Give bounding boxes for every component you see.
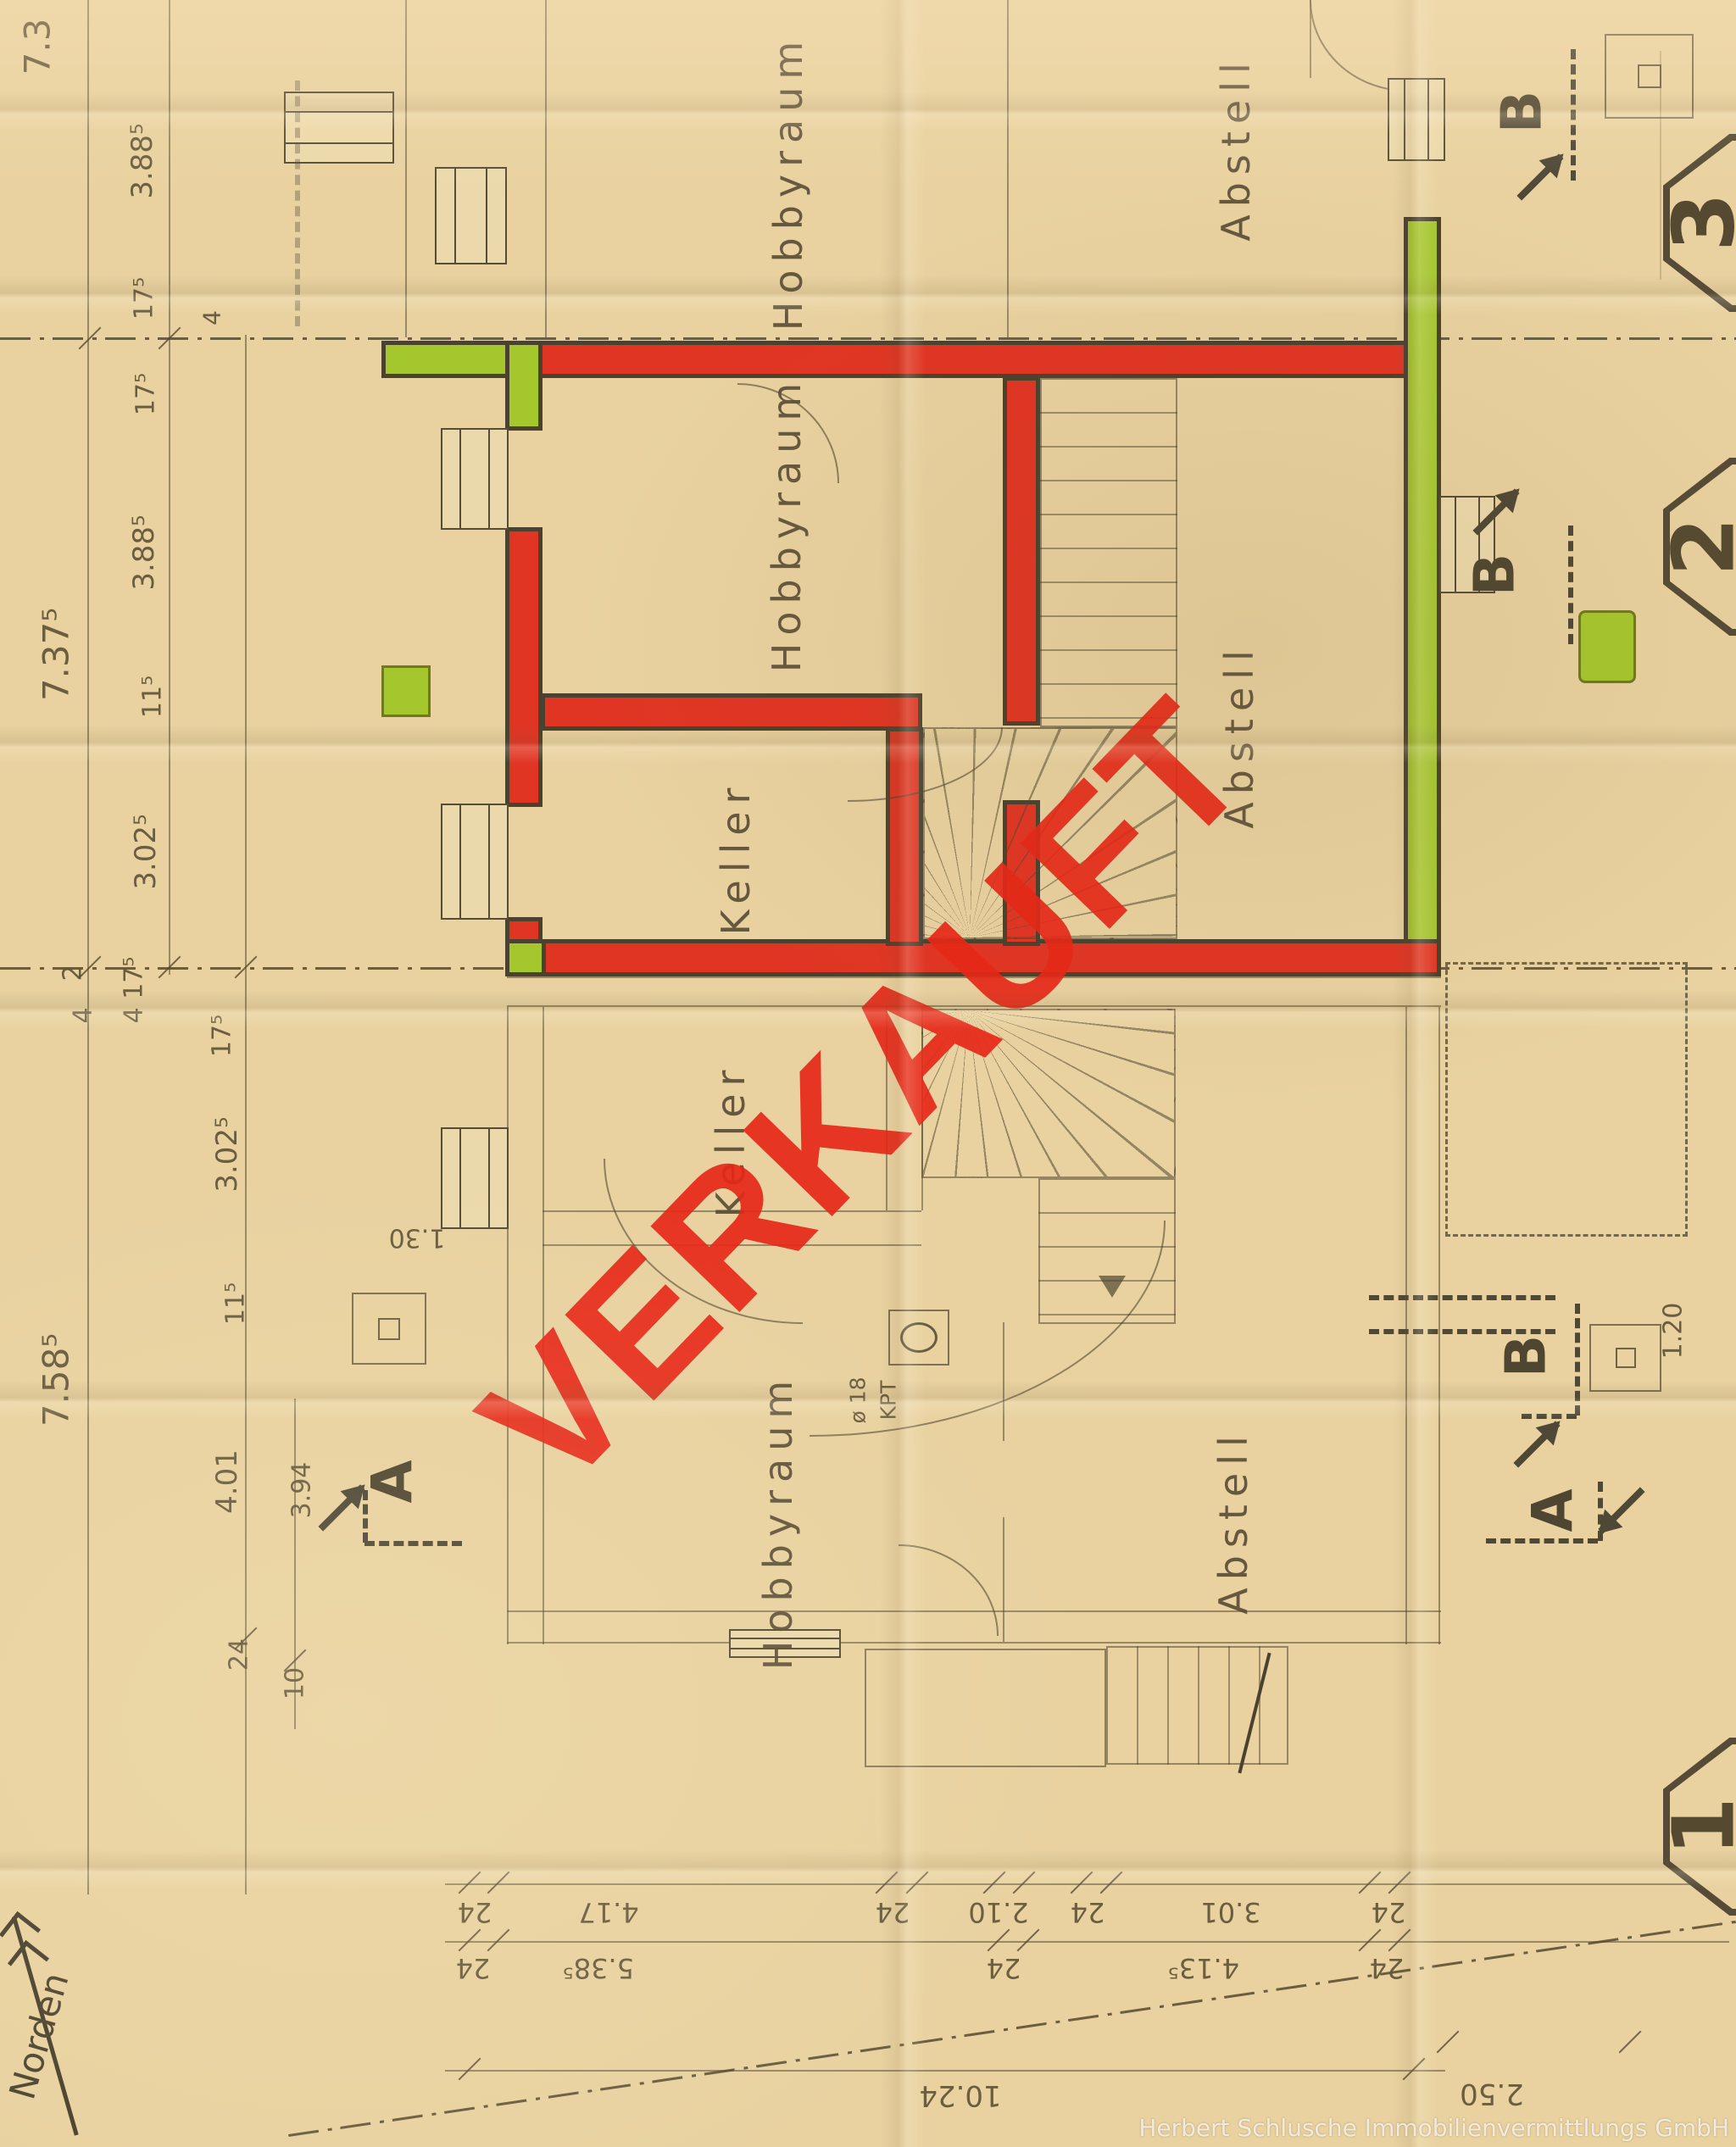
drain-diameter-label: ø 18 xyxy=(846,1377,871,1423)
dim-label: 3.02⁵ xyxy=(129,814,163,889)
window-symbol xyxy=(284,92,394,164)
lower-wall-line xyxy=(1438,1007,1440,1644)
dim-label: 4 17⁵ xyxy=(120,957,149,1024)
section-line-b xyxy=(1568,526,1573,644)
dim-guide-line xyxy=(87,0,89,1894)
dim-label: 24 xyxy=(1370,1952,1405,1984)
section-line-a xyxy=(364,1541,462,1546)
party-wall-green xyxy=(1404,217,1441,976)
sheet-badge-number-bottom: 1 xyxy=(1655,1797,1736,1856)
dim-label: 11⁵ xyxy=(138,676,168,718)
dim-label: 4.13⁵ xyxy=(1168,1952,1239,1984)
terrace-outline xyxy=(1369,1295,1555,1300)
room-label-hobbyraum-upper: Hobbyraum xyxy=(765,34,811,331)
dim-label: 3.88⁵ xyxy=(125,123,159,198)
window-symbol xyxy=(435,167,507,264)
dim-label: 4 xyxy=(198,310,226,325)
section-marker-b-top: B xyxy=(1489,91,1555,133)
dim-label: 2.10 xyxy=(968,1896,1028,1928)
upper-wall-line xyxy=(545,0,547,337)
dim-label: 7.37⁵ xyxy=(36,608,77,701)
dim-label: 3.01 xyxy=(1200,1896,1260,1928)
floorplan-scan: B B B A A 3 2 1 Hobbyraum Abstell Hobbyr… xyxy=(0,0,1736,2147)
section-marker-b-middle: B xyxy=(1462,553,1527,596)
dim-chain-line xyxy=(445,2070,1445,2072)
green-marker-square xyxy=(381,665,431,717)
sheet-badge-number-top: 3 xyxy=(1655,192,1736,252)
dim-label: 4 xyxy=(69,1007,98,1023)
dim-label: 24 xyxy=(1071,1896,1105,1928)
lower-wall-line xyxy=(1405,1007,1407,1644)
lower-wall-line xyxy=(1003,1517,1004,1642)
interior-wall-red xyxy=(541,693,922,731)
sheet-badge-number-middle: 2 xyxy=(1655,517,1736,576)
dim-label: 17⁵ xyxy=(208,1015,237,1057)
dim-label: 7.3 xyxy=(17,19,58,75)
room-label-keller-mid: Keller xyxy=(713,781,759,936)
exterior-wall-red xyxy=(505,527,542,807)
dim-label: 3.88⁵ xyxy=(127,515,161,590)
party-wall-green xyxy=(505,939,546,976)
drain-type-label: KPT xyxy=(876,1381,901,1421)
terrace-outline xyxy=(1445,962,1688,1237)
dim-label-total: 10.24 xyxy=(919,2078,1001,2112)
door-arc xyxy=(899,1544,999,1636)
section-marker-a-right: A xyxy=(1521,1488,1586,1532)
dim-label: 17⁵ xyxy=(130,277,159,320)
room-label-abstell-lower: Abstell xyxy=(1210,1428,1256,1615)
section-marker-a-left: A xyxy=(360,1460,426,1503)
room-label-hobbyraum-mid: Hobbyraum xyxy=(764,375,810,672)
section-arrow xyxy=(1598,1487,1644,1533)
party-wall-green xyxy=(505,341,542,431)
dim-label: 11⁵ xyxy=(221,1282,251,1325)
exterior-stair xyxy=(1106,1646,1288,1765)
section-line-a xyxy=(1486,1538,1598,1544)
paper-fold xyxy=(0,92,1736,131)
party-wall-green xyxy=(381,341,519,378)
lower-wall-line xyxy=(507,1642,1441,1644)
dim-label: 17⁵ xyxy=(131,373,161,415)
column-symbol xyxy=(352,1293,426,1365)
upper-wall-line xyxy=(405,0,407,337)
section-arrow xyxy=(318,1484,364,1531)
north-label: Norden xyxy=(1,1968,76,2104)
section-marker-b-lower: B xyxy=(1494,1335,1559,1377)
column-symbol xyxy=(1605,34,1694,119)
axis-line xyxy=(0,337,1736,340)
exterior-wall-red xyxy=(514,341,1441,378)
dim-label: 3.02⁵ xyxy=(210,1116,244,1192)
column-symbol xyxy=(1589,1324,1661,1392)
terrace-outline xyxy=(1369,1329,1555,1334)
dim-label: 4.01 xyxy=(210,1449,244,1514)
room-label-hobbyraum-lower: Hobbyraum xyxy=(755,1373,801,1670)
dim-label: 24 xyxy=(456,1952,491,1984)
green-marker-square xyxy=(1578,610,1636,683)
window-symbol xyxy=(1388,78,1445,161)
dim-extension-line xyxy=(295,81,300,326)
dim-label: 24 xyxy=(987,1952,1021,1984)
light-well xyxy=(865,1649,1106,1767)
dim-chain-line xyxy=(445,1941,1729,1943)
room-label-abstell-upper: Abstell xyxy=(1213,55,1259,242)
stair-flight xyxy=(1040,378,1177,727)
dim-label: 24 xyxy=(458,1896,492,1928)
dim-label: 3.94 xyxy=(287,1462,317,1519)
section-arrow xyxy=(1516,153,1563,200)
window-symbol xyxy=(441,1127,509,1229)
dim-label: 4.17 xyxy=(578,1896,638,1928)
floor-drain-symbol xyxy=(888,1310,949,1366)
section-line-b xyxy=(1575,1304,1580,1416)
dim-label: 24 xyxy=(876,1896,910,1928)
dim-label-door: 1.30 xyxy=(389,1223,446,1253)
dim-label: 7.58⁵ xyxy=(36,1333,77,1427)
paper-fold xyxy=(0,275,1736,314)
window-symbol xyxy=(441,804,509,920)
dim-label: 5.38⁵ xyxy=(563,1952,634,1984)
dim-label: 24 xyxy=(1372,1896,1406,1928)
window-symbol xyxy=(441,428,509,530)
dim-guide-line xyxy=(169,0,170,975)
dim-label-total: 2.50 xyxy=(1460,2077,1524,2111)
upper-wall-line xyxy=(1007,0,1009,337)
dim-label-right: 1.20 xyxy=(1659,1303,1689,1360)
realtor-watermark: Herbert Schlusche Immobilienvermittlungs… xyxy=(1138,2114,1729,2142)
section-arrow xyxy=(1513,1421,1560,1467)
interior-wall-red xyxy=(1003,376,1040,726)
dim-chain-line xyxy=(445,1883,1729,1885)
